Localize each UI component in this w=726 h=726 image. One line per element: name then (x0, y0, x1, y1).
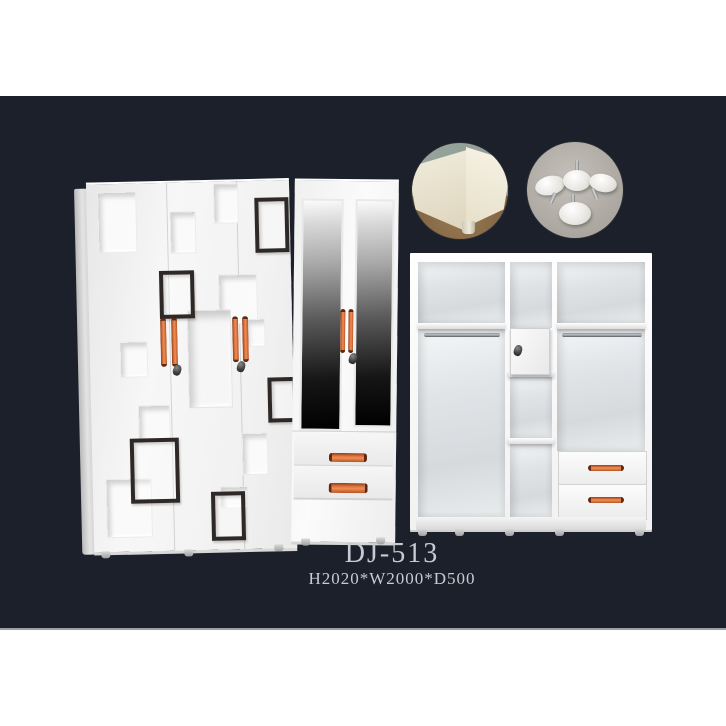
decor-niche-large (187, 309, 233, 408)
hanging-space-left (418, 329, 505, 517)
mirror-door-handle (348, 309, 353, 353)
door-handle (242, 316, 249, 362)
mirror-door-unit (291, 178, 399, 542)
decor-niche (97, 192, 137, 254)
decor-frame (254, 197, 289, 253)
drawer (294, 432, 393, 467)
adjustable-feet-detail-photo (527, 142, 623, 238)
decor-frame (159, 270, 195, 319)
center-cubby-bottom (510, 443, 552, 517)
drawer-handle (588, 465, 624, 471)
drawer-handle (588, 497, 624, 503)
door-handle (160, 318, 167, 367)
cabinet-foot (462, 221, 475, 234)
glide-foot (563, 170, 591, 191)
model-number-text: DJ-513 (252, 539, 532, 569)
drawer-handle (329, 453, 367, 462)
decor-niche (242, 433, 269, 476)
wardrobe-foot (455, 529, 464, 536)
wardrobe-foot (101, 551, 110, 558)
interior-drawer-stack (558, 451, 645, 517)
hanging-space-right (557, 329, 645, 451)
hanging-rail (424, 333, 500, 337)
wardrobe-foot (184, 549, 193, 556)
decor-frame (211, 491, 246, 541)
corner-leg-detail-photo (412, 143, 508, 239)
glide-foot (559, 202, 591, 225)
wardrobe-interior-view (410, 253, 652, 530)
glide-foot (533, 173, 567, 199)
center-cubby-middle (510, 375, 552, 438)
wardrobe-foot (418, 529, 427, 536)
door-handle (232, 316, 239, 362)
mirror-door-right (353, 199, 394, 427)
product-photo-stage: DJ-513 H2020*W2000*D500 (0, 0, 726, 726)
door-lock (172, 364, 183, 377)
decor-niche (120, 341, 149, 378)
plinth (416, 517, 646, 530)
top-cubby-left (418, 262, 505, 323)
dimensions-text: H2020*W2000*D500 (252, 569, 532, 589)
wardrobe-foot (635, 529, 644, 536)
decor-frame (130, 438, 180, 504)
decor-niche (170, 211, 197, 254)
top-cubby-right (557, 262, 645, 323)
center-cubby-top (510, 262, 552, 328)
cabinet-corner-right-face (466, 147, 508, 227)
dark-photo-backdrop: DJ-513 H2020*W2000*D500 (0, 96, 726, 630)
wardrobe-foot (555, 529, 564, 536)
mirror-door-left (299, 199, 343, 431)
door-handle (171, 318, 178, 367)
left-face (86, 178, 297, 553)
hanging-rail (562, 333, 642, 337)
shelf (557, 323, 645, 329)
door-lock (236, 360, 247, 373)
drawer-handle (329, 483, 368, 493)
shelf (418, 323, 505, 329)
caption: DJ-513 H2020*W2000*D500 (252, 539, 532, 589)
mirror-door-handle (340, 309, 345, 353)
decor-niche (213, 183, 239, 224)
wardrobe-foot (505, 529, 514, 536)
shelf (508, 438, 554, 444)
